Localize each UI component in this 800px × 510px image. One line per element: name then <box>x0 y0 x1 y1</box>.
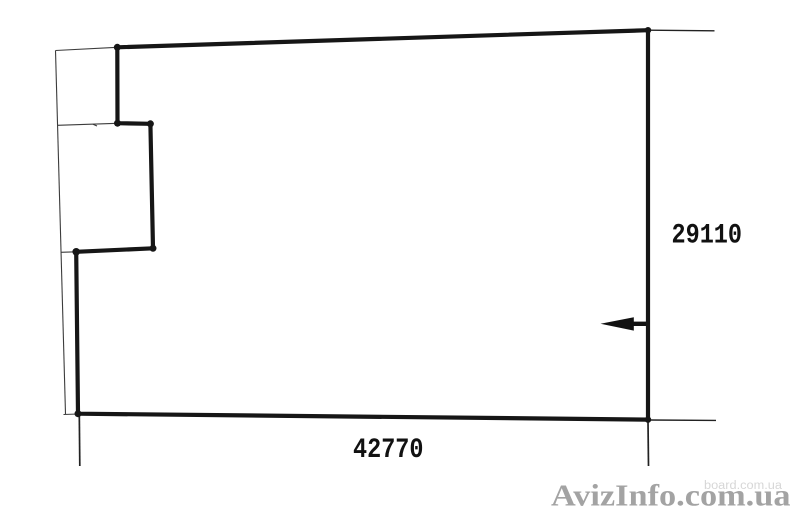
svg-text:42770: 42770 <box>353 435 424 466</box>
svg-text:29110: 29110 <box>672 221 743 252</box>
svg-text:AvizInfo.com.ua: AvizInfo.com.ua <box>551 478 791 510</box>
